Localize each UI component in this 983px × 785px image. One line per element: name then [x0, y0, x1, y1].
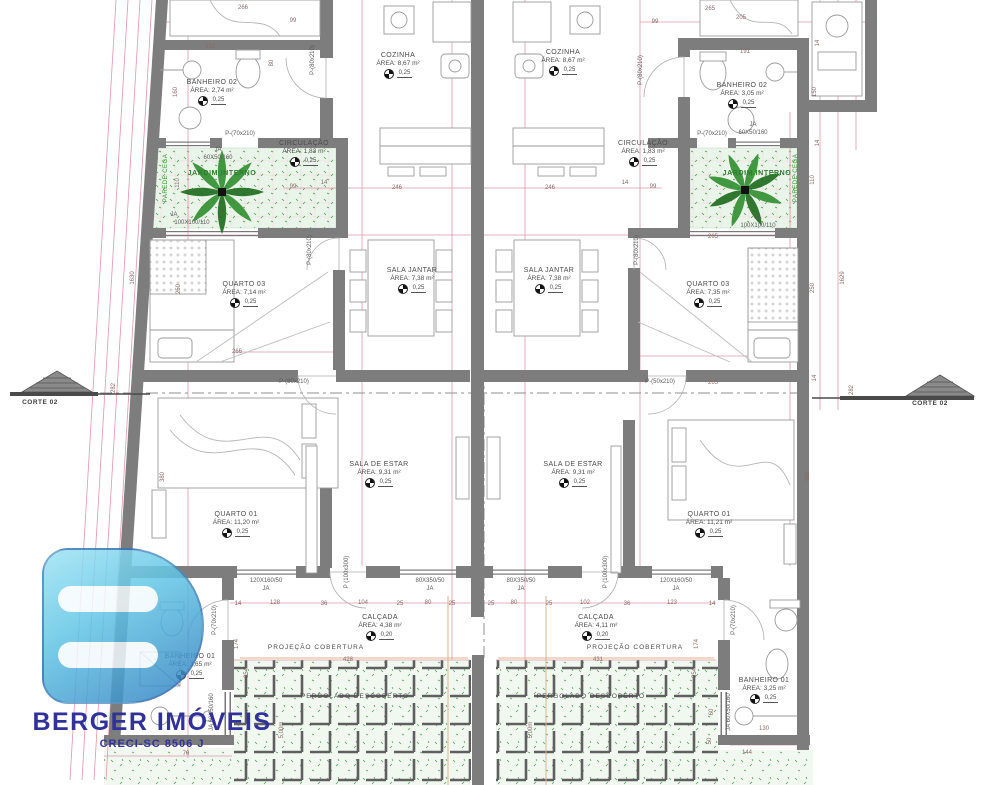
dimension-label: 104 [358, 600, 368, 606]
dimension-label: 60 [709, 709, 715, 716]
dimension-label: 1630 [130, 271, 136, 284]
open-label: P (100x300) [603, 556, 609, 589]
dimension-label: 99 [650, 184, 657, 190]
green-label: PAREDE CEGA [163, 154, 169, 202]
dimension-label: 25 [488, 601, 495, 607]
dimension-label: 380 [160, 472, 166, 482]
dimension-label: 99 [652, 19, 659, 25]
dimension-label: 130 [759, 726, 769, 732]
open-label: JA 60X50/160 [726, 693, 732, 730]
dimension-label: 144 [742, 750, 752, 756]
dimension-label: 14 [812, 375, 818, 382]
dimension-label: 102 [580, 600, 590, 606]
dimension-label: 266 [232, 349, 242, 355]
dimension-label: 1629 [840, 271, 846, 284]
dimension-label: 36 [321, 601, 328, 607]
dimension-label: 25 [449, 601, 456, 607]
dimension-label: 110 [810, 175, 816, 185]
logo-b-notch [58, 586, 158, 612]
brand-creci: CRECI-SC 8506 J [22, 738, 282, 750]
dimension-label: 265 [705, 6, 715, 12]
open-label: P-(70x210) [225, 131, 255, 137]
open-label: 120X160/50 [660, 578, 692, 584]
dimension-label: 172 [205, 44, 215, 50]
dimension-label: 265 [708, 380, 718, 386]
open-label: 60X50/160 [738, 130, 767, 136]
open-label: P-(50x210) [645, 379, 675, 385]
dimension-label: 80 [269, 60, 275, 67]
open-label: JA [517, 586, 524, 592]
open-label: P-(80x210) [310, 45, 316, 75]
open-label: P-(70x210) [731, 605, 737, 635]
dimension-label: 265 [708, 234, 718, 240]
dimension-label: 14 [321, 180, 328, 186]
dimension-label: 246 [545, 185, 555, 191]
dimension-label: 428 [343, 657, 353, 663]
dimension-label: 5,00m [528, 722, 534, 739]
open-label: P-(80x210) [307, 235, 313, 265]
dimension-label: 14 [709, 601, 716, 607]
dimension-label: 80 [511, 600, 518, 606]
open-label: 100X100/110 [174, 220, 209, 226]
dimension-label: 282 [849, 385, 855, 395]
dimension-label: 250 [176, 284, 182, 294]
open-label: 60X50/160 [203, 155, 232, 161]
dimension-label: 99 [290, 184, 297, 190]
dimension-label: 14 [815, 140, 821, 147]
brand-logo: BERGER IMÓVEIS CRECI-SC 8506 J [22, 540, 282, 765]
dimension-label: 246 [392, 185, 402, 191]
open-label: P (100x300) [344, 556, 350, 589]
open-label: 100X100/110 [740, 223, 775, 229]
open-label: P-(80x210) [638, 55, 644, 85]
dimension-label: 25 [397, 601, 404, 607]
dimension-label: 205 [736, 15, 746, 21]
open-label: P-(80x210) [279, 379, 309, 385]
dimension-label: 14 [622, 180, 629, 186]
dimension-label: 431 [593, 657, 603, 663]
corte-label: CORTE 02 [912, 401, 948, 407]
floorplan-canvas: BANHEIRO 02 ÁREA: 2,74 m² 0,25 COZINHA Á… [0, 0, 983, 785]
dimension-label: 160 [173, 87, 179, 97]
open-label: JA [214, 147, 221, 153]
open-label: P-(80x210) [634, 235, 640, 265]
open-label: 80X350/50 [506, 578, 535, 584]
dimension-label: 99 [290, 18, 297, 24]
corte-label: CORTE 02 [22, 400, 58, 406]
dimension-label: 191 [740, 49, 750, 55]
dimension-label: 266 [238, 5, 248, 11]
dimension-label: 174 [694, 639, 700, 649]
brand-name: BERGER IMÓVEIS [22, 708, 282, 737]
dimension-label: 250 [810, 283, 816, 293]
dimension-label: 50 [707, 738, 713, 745]
open-label: P-(70x210) [697, 131, 727, 137]
dimension-label: 354 [692, 668, 698, 678]
logo-b-notch [58, 642, 158, 668]
dimension-label: 150 [812, 87, 818, 97]
dimension-label: 380 [805, 472, 811, 482]
open-label: JA [426, 586, 433, 592]
open-label: JA [672, 586, 679, 592]
open-label: JA [754, 215, 761, 221]
green-label: PAREDE CEGA [793, 154, 799, 202]
dimension-label: 282 [111, 383, 117, 393]
open-label: JA [170, 212, 177, 218]
dimension-label: 14 [815, 40, 821, 47]
logo-b-icon [42, 548, 204, 704]
dimension-label: 36 [624, 601, 631, 607]
open-label: JA [749, 122, 756, 128]
open-label: 80X350/50 [415, 578, 444, 584]
dimension-label: 25 [546, 601, 553, 607]
dimension-label: 123 [667, 600, 677, 606]
dimension-label: 110 [175, 178, 181, 188]
dimension-label: 80 [425, 600, 432, 606]
